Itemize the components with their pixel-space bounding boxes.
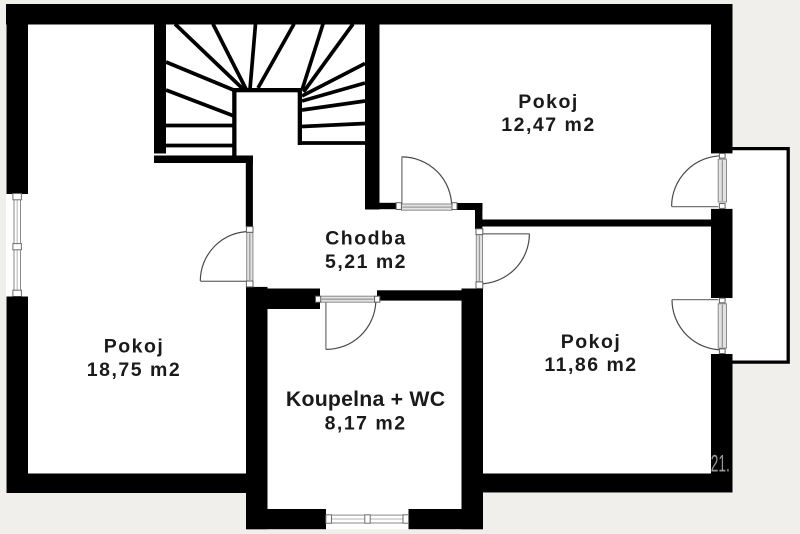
svg-text:11,86 m2: 11,86 m2 (544, 354, 637, 376)
svg-text:Pokoj: Pokoj (518, 91, 579, 113)
svg-text:Pokoj: Pokoj (561, 331, 622, 353)
svg-text:8,17 m2: 8,17 m2 (325, 412, 407, 434)
svg-text:Chodba: Chodba (325, 228, 407, 250)
svg-text:18,75 m2: 18,75 m2 (87, 359, 181, 381)
svg-text:Pokoj: Pokoj (104, 336, 165, 358)
svg-text:12,47 m2: 12,47 m2 (501, 114, 595, 136)
svg-text:Koupelna + WC: Koupelna + WC (286, 387, 445, 411)
svg-text:5,21 m2: 5,21 m2 (325, 251, 407, 273)
svg-text:21.: 21. (711, 451, 730, 478)
